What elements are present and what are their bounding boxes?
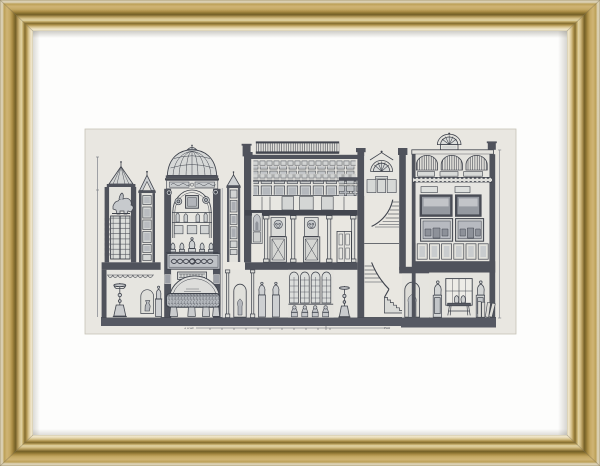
svg-text:Feet: Feet [383, 326, 391, 330]
svg-text:a scale: a scale [184, 326, 194, 330]
